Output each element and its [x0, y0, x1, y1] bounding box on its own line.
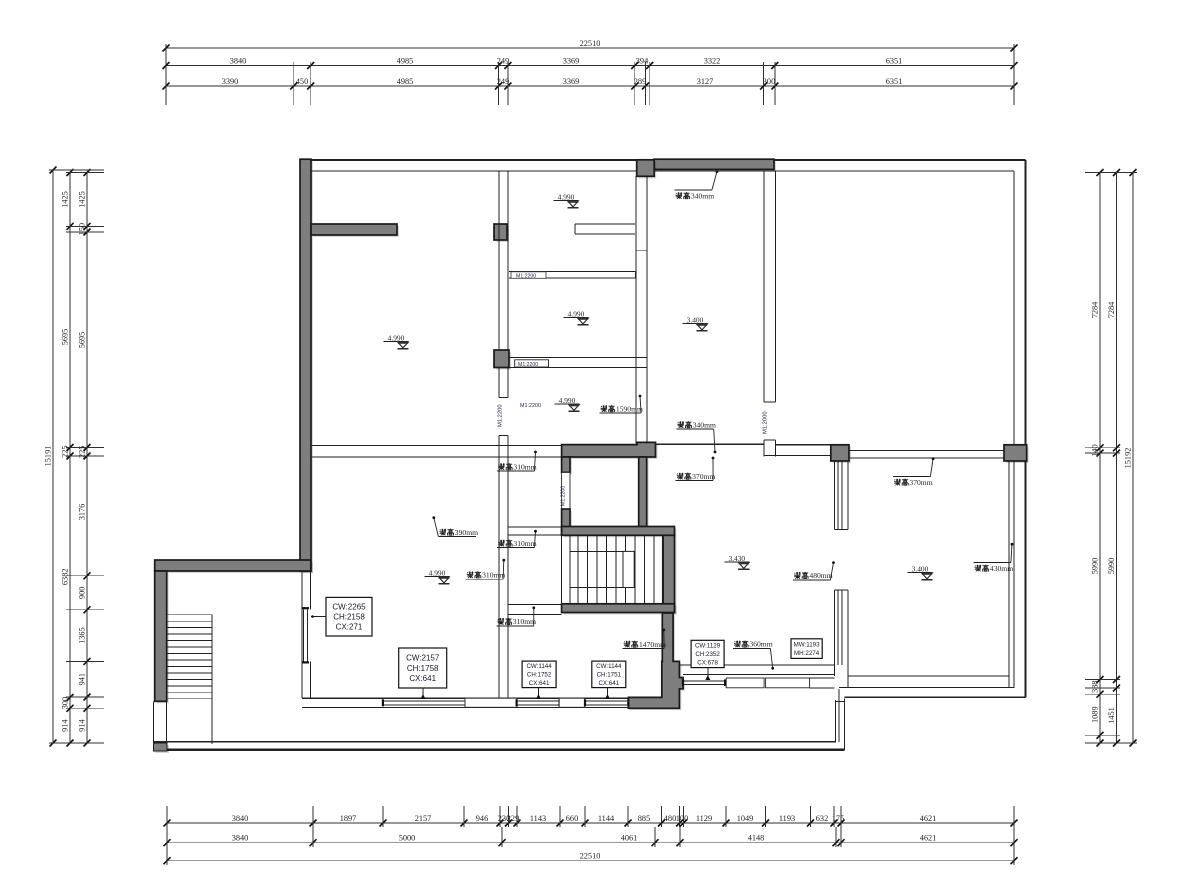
- svg-text:CX:678: CX:678: [697, 660, 718, 667]
- svg-text:1144: 1144: [598, 814, 615, 823]
- svg-text:632: 632: [816, 814, 828, 823]
- svg-text:CH:2352: CH:2352: [695, 651, 720, 658]
- svg-text:1089: 1089: [1091, 706, 1100, 723]
- svg-text:3369: 3369: [563, 77, 580, 86]
- svg-text:4148: 4148: [748, 834, 765, 843]
- svg-text:CX:641: CX:641: [529, 680, 550, 687]
- svg-text:1470mm: 1470mm: [639, 640, 666, 649]
- svg-text:4.990: 4.990: [559, 396, 576, 405]
- svg-text:310mm: 310mm: [513, 462, 536, 471]
- svg-text:15192: 15192: [1124, 448, 1133, 469]
- svg-text:4985: 4985: [397, 77, 414, 86]
- svg-text:914: 914: [61, 719, 70, 732]
- svg-text:M1:2200: M1:2200: [560, 486, 566, 506]
- svg-text:1425: 1425: [78, 191, 87, 208]
- svg-text:941: 941: [78, 673, 87, 685]
- svg-text:900: 900: [78, 587, 87, 599]
- svg-text:300: 300: [763, 77, 775, 86]
- svg-text:4061: 4061: [621, 834, 638, 843]
- svg-text:1143: 1143: [530, 814, 546, 823]
- svg-text:390mm: 390mm: [455, 528, 478, 537]
- svg-text:3322: 3322: [704, 56, 721, 65]
- svg-text:480: 480: [664, 814, 676, 823]
- svg-text:360mm: 360mm: [749, 640, 772, 649]
- svg-text:6382: 6382: [61, 569, 70, 586]
- svg-text:CW:1144: CW:1144: [526, 663, 552, 670]
- svg-text:660: 660: [566, 814, 578, 823]
- svg-text:3390: 3390: [222, 77, 239, 86]
- svg-text:MW:1193: MW:1193: [794, 642, 820, 649]
- svg-text:310mm: 310mm: [513, 539, 536, 548]
- svg-text:1049: 1049: [737, 814, 754, 823]
- svg-text:3127: 3127: [697, 77, 714, 86]
- svg-text:CX:641: CX:641: [598, 680, 619, 687]
- svg-text:CW:2157: CW:2157: [406, 654, 440, 663]
- svg-text:140: 140: [1091, 444, 1100, 456]
- svg-text:2157: 2157: [415, 814, 432, 823]
- svg-text:1451: 1451: [1107, 707, 1116, 724]
- svg-text:340mm: 340mm: [691, 191, 714, 200]
- svg-text:4985: 4985: [397, 56, 414, 65]
- svg-text:CW:2265: CW:2265: [332, 602, 366, 611]
- svg-text:150: 150: [78, 223, 87, 235]
- svg-text:1425: 1425: [61, 191, 70, 208]
- svg-text:MH:2274: MH:2274: [794, 650, 820, 657]
- svg-text:3840: 3840: [232, 834, 249, 843]
- svg-text:4621: 4621: [920, 814, 937, 823]
- svg-text:M1:2000: M1:2000: [763, 411, 769, 434]
- svg-text:M1:2200: M1:2200: [520, 403, 541, 409]
- svg-text:6351: 6351: [886, 56, 903, 65]
- svg-text:CW:1129: CW:1129: [695, 643, 721, 650]
- svg-text:4.990: 4.990: [388, 333, 405, 342]
- svg-text:7284: 7284: [1091, 301, 1100, 318]
- svg-text:5695: 5695: [78, 332, 87, 349]
- svg-text:394: 394: [636, 56, 649, 65]
- svg-text:5990: 5990: [1091, 558, 1100, 575]
- svg-text:CH:1752: CH:1752: [527, 672, 552, 679]
- svg-text:7284: 7284: [1107, 301, 1116, 318]
- svg-text:885: 885: [638, 814, 650, 823]
- svg-text:5695: 5695: [61, 329, 70, 346]
- svg-text:370mm: 370mm: [692, 472, 715, 481]
- svg-text:914: 914: [78, 719, 87, 732]
- svg-text:480mm: 480mm: [809, 571, 832, 580]
- svg-text:450: 450: [296, 77, 308, 86]
- svg-text:CH:1758: CH:1758: [407, 664, 439, 673]
- svg-text:1590mm: 1590mm: [616, 404, 643, 413]
- svg-text:310mm: 310mm: [482, 571, 505, 580]
- svg-text:M1:2200: M1:2200: [518, 362, 538, 368]
- svg-text:3176: 3176: [78, 504, 87, 521]
- svg-text:CX:271: CX:271: [336, 623, 363, 632]
- svg-text:289: 289: [634, 77, 646, 86]
- svg-text:3.400: 3.400: [687, 315, 704, 324]
- svg-text:388: 388: [1091, 681, 1100, 693]
- svg-text:3840: 3840: [232, 814, 249, 823]
- svg-text:310mm: 310mm: [513, 617, 536, 626]
- svg-text:5990: 5990: [1107, 558, 1116, 575]
- svg-text:1365: 1365: [78, 627, 87, 644]
- svg-text:946: 946: [476, 814, 488, 823]
- svg-text:300: 300: [61, 697, 70, 709]
- svg-text:100: 100: [676, 814, 688, 823]
- svg-text:M1:2200: M1:2200: [498, 404, 504, 427]
- svg-text:1129: 1129: [696, 814, 712, 823]
- svg-text:1897: 1897: [340, 814, 357, 823]
- svg-text:340mm: 340mm: [693, 420, 716, 429]
- svg-text:CH:1751: CH:1751: [597, 672, 622, 679]
- svg-text:4.990: 4.990: [568, 309, 585, 318]
- svg-text:3840: 3840: [230, 56, 247, 65]
- svg-text:3369: 3369: [563, 56, 580, 65]
- svg-text:5000: 5000: [399, 834, 416, 843]
- svg-text:22510: 22510: [580, 852, 601, 861]
- svg-text:M1:2200: M1:2200: [516, 273, 536, 279]
- svg-text:CH:2158: CH:2158: [333, 613, 365, 622]
- svg-text:6351: 6351: [886, 77, 903, 86]
- svg-text:CX:641: CX:641: [409, 674, 436, 683]
- svg-text:15191: 15191: [44, 446, 53, 467]
- svg-text:4621: 4621: [920, 834, 937, 843]
- svg-text:430mm: 430mm: [990, 564, 1013, 573]
- svg-text:22510: 22510: [580, 39, 601, 48]
- svg-text:CW:1144: CW:1144: [596, 663, 622, 670]
- svg-text:1193: 1193: [779, 814, 795, 823]
- svg-text:370mm: 370mm: [909, 478, 932, 487]
